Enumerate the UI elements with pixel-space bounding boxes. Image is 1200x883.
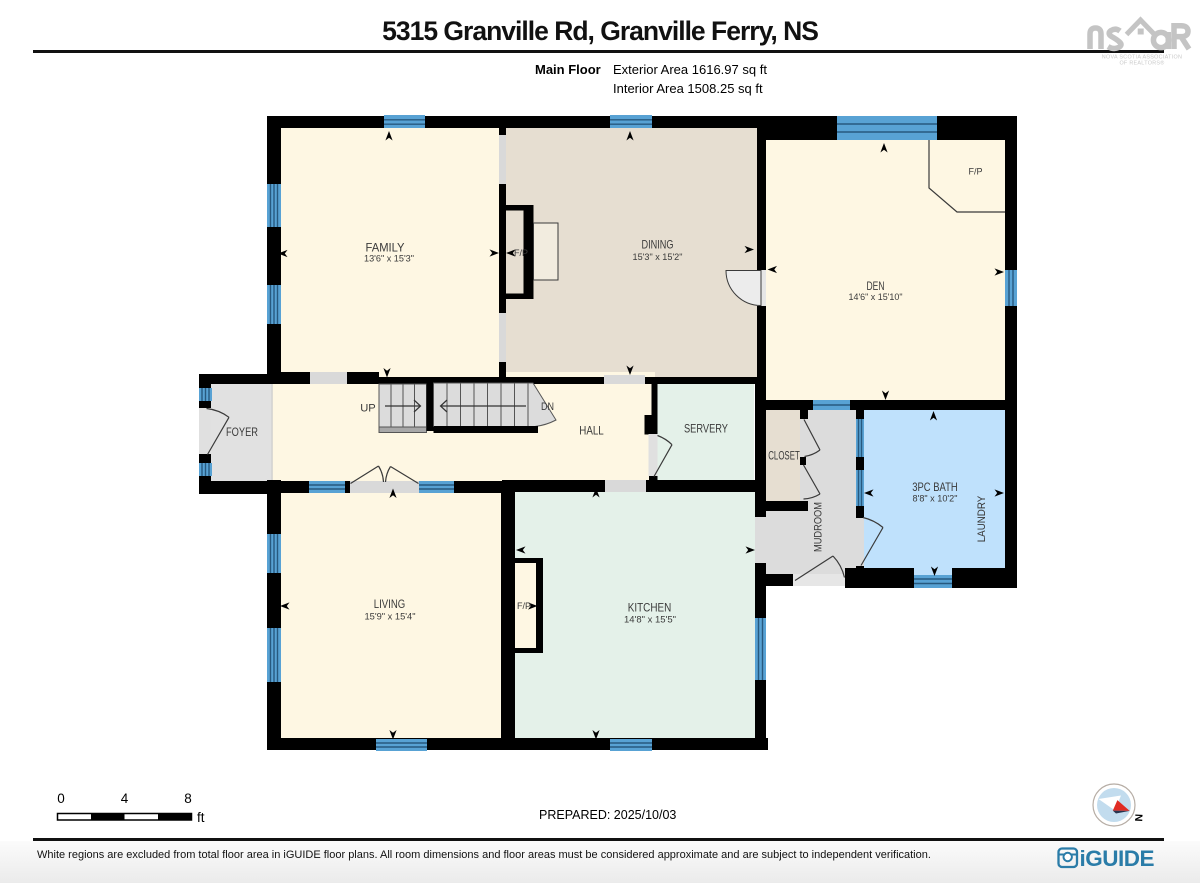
svg-text:N: N (1132, 814, 1144, 822)
svg-text:F/P: F/P (514, 248, 528, 259)
svg-text:DINING: DINING (642, 238, 674, 252)
svg-text:4: 4 (121, 791, 129, 806)
svg-text:KITCHEN: KITCHEN (628, 601, 672, 615)
svg-text:F/P: F/P (969, 167, 983, 178)
svg-text:CLOSET: CLOSET (768, 449, 800, 463)
svg-text:FAMILY: FAMILY (366, 241, 405, 255)
svg-text:LAUNDRY: LAUNDRY (976, 495, 988, 542)
svg-text:iGUIDE: iGUIDE (1080, 846, 1155, 871)
svg-text:LIVING: LIVING (374, 597, 406, 611)
svg-text:MUDROOM: MUDROOM (813, 502, 825, 552)
svg-text:14'6" x 15'10": 14'6" x 15'10" (849, 292, 903, 303)
svg-text:14'8" x 15'5": 14'8" x 15'5" (624, 615, 676, 626)
svg-text:DN: DN (541, 401, 554, 413)
svg-text:13'6" x 15'3": 13'6" x 15'3" (364, 254, 414, 265)
svg-text:SERVERY: SERVERY (684, 422, 728, 436)
svg-text:8'8" x 10'2": 8'8" x 10'2" (913, 494, 958, 505)
svg-text:UP: UP (360, 403, 376, 415)
svg-text:F/P: F/P (517, 601, 531, 612)
svg-text:HALL: HALL (579, 424, 604, 438)
svg-text:8: 8 (184, 791, 192, 806)
svg-text:DEN: DEN (867, 279, 885, 293)
svg-text:3PC BATH: 3PC BATH (912, 480, 958, 494)
svg-text:15'3" x 15'2": 15'3" x 15'2" (633, 252, 683, 263)
svg-text:ft: ft (197, 810, 205, 825)
svg-text:15'9" x 15'4": 15'9" x 15'4" (365, 612, 416, 623)
svg-text:0: 0 (57, 791, 65, 806)
svg-text:FOYER: FOYER (226, 425, 258, 439)
